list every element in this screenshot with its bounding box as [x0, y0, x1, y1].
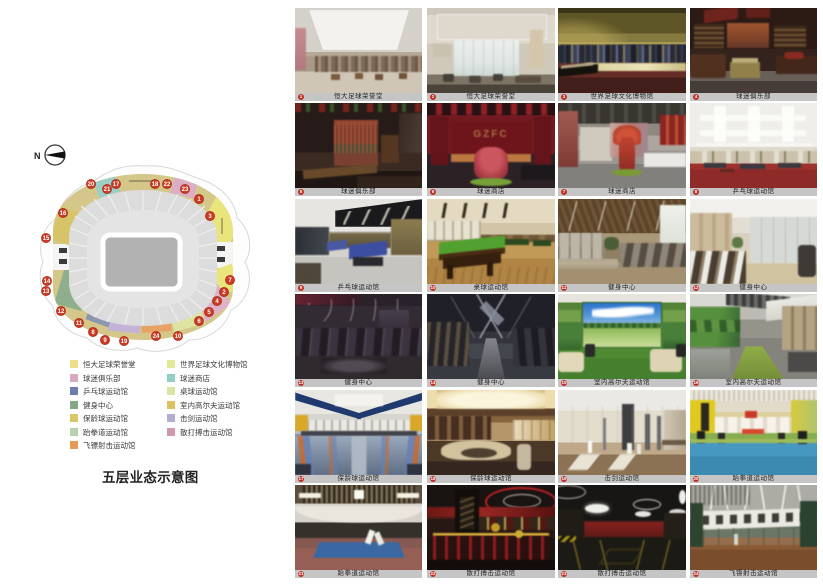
- svg-text:20: 20: [88, 182, 95, 188]
- svg-text:19: 19: [121, 339, 128, 345]
- svg-text:11: 11: [76, 321, 83, 327]
- svg-text:15: 15: [43, 236, 50, 242]
- svg-text:17: 17: [113, 182, 120, 188]
- svg-text:14: 14: [44, 279, 51, 285]
- svg-text:12: 12: [58, 309, 65, 315]
- svg-text:13: 13: [43, 289, 50, 295]
- svg-text:22: 22: [164, 182, 171, 188]
- svg-text:21: 21: [104, 187, 111, 193]
- svg-text:18: 18: [152, 182, 159, 188]
- svg-text:23: 23: [182, 187, 189, 193]
- svg-text:10: 10: [175, 334, 182, 340]
- svg-text:24: 24: [153, 334, 160, 340]
- svg-text:16: 16: [60, 211, 67, 217]
